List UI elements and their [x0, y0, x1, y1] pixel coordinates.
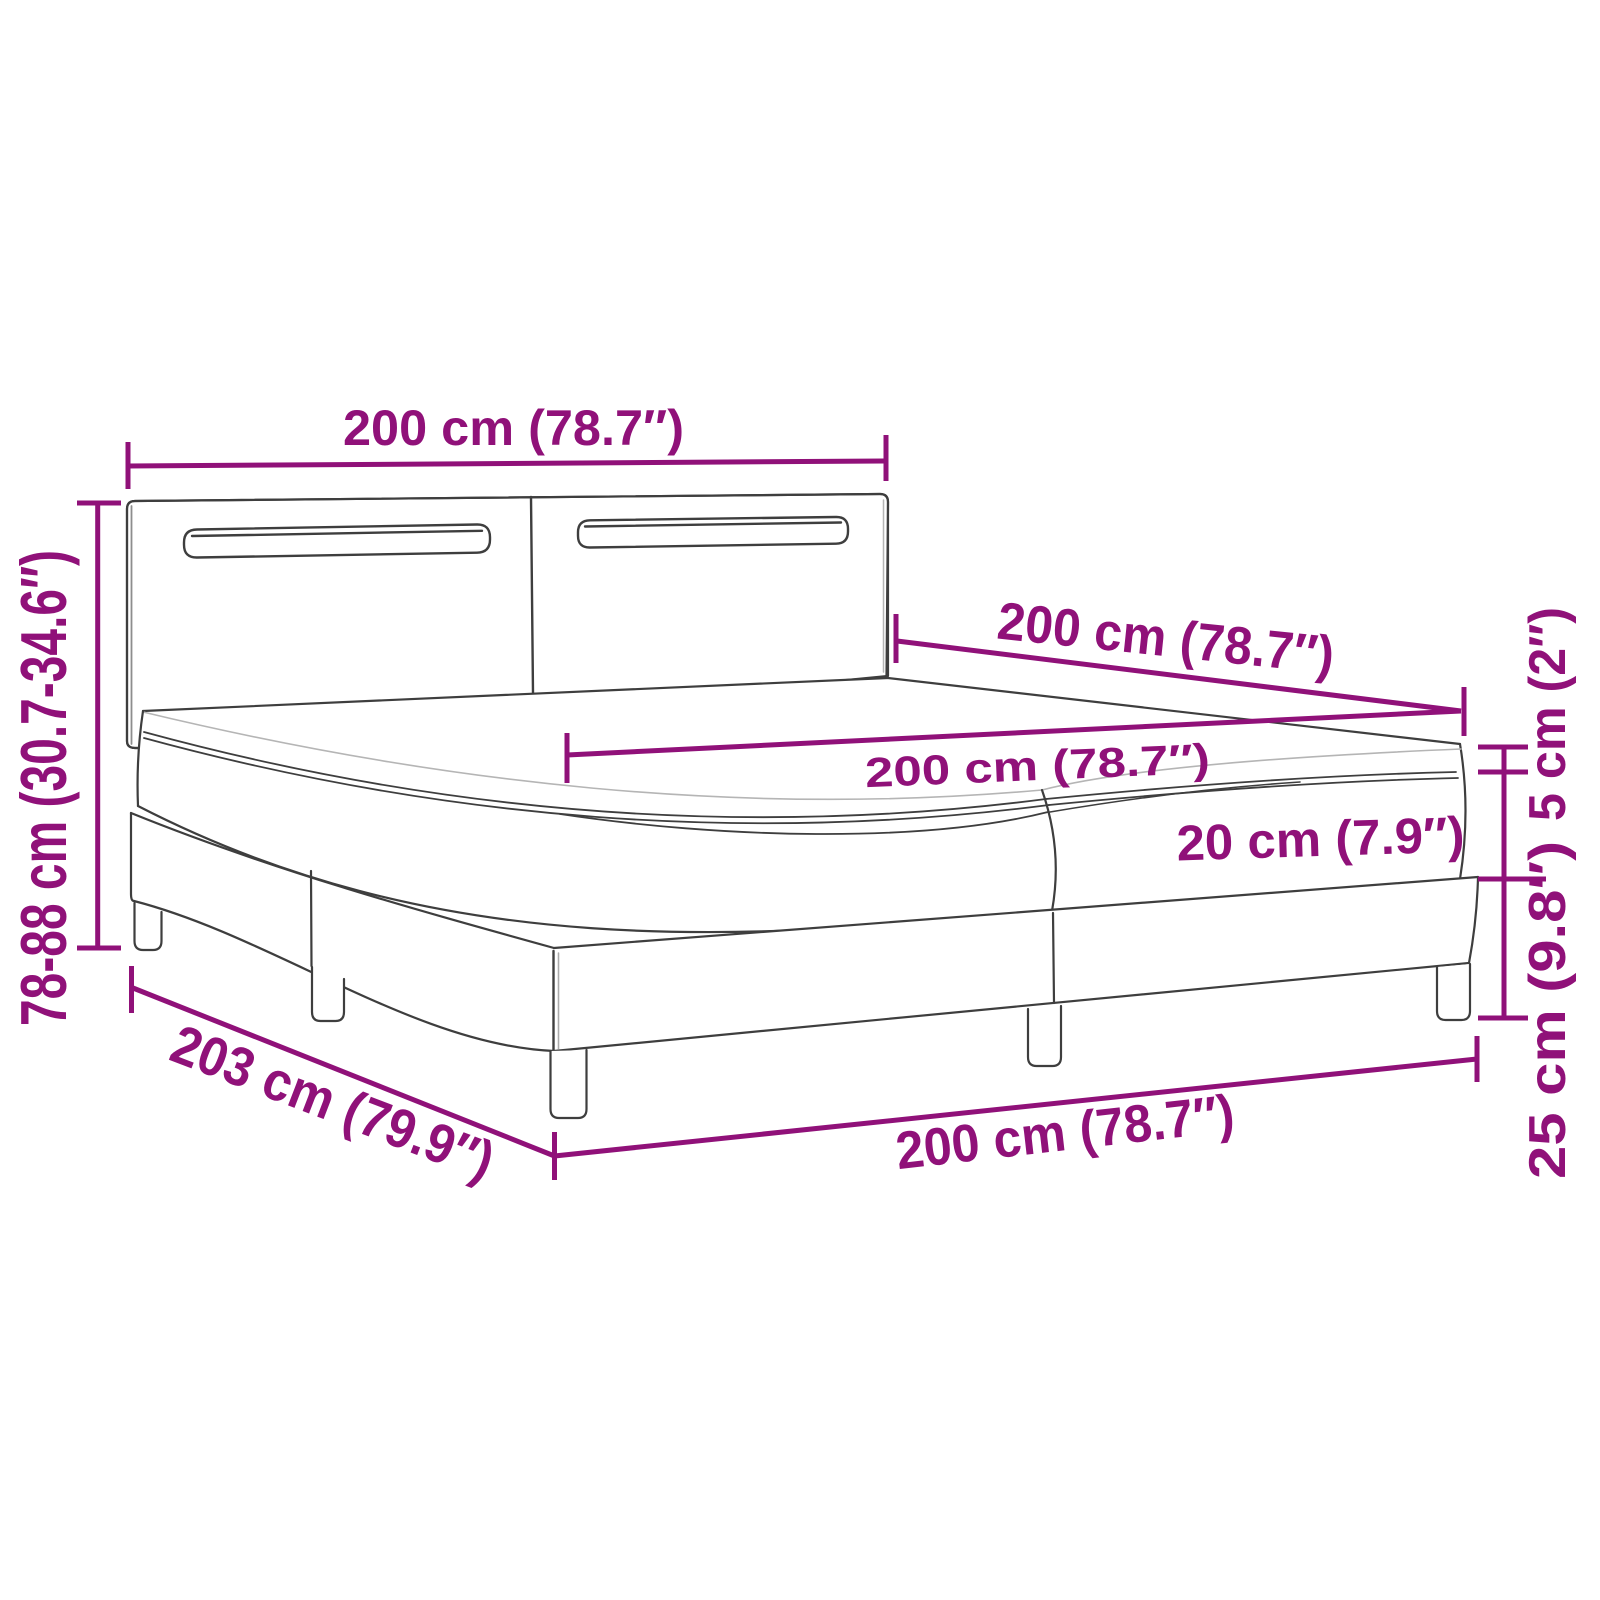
svg-text:200 cm (78.7″): 200 cm (78.7″) — [343, 400, 684, 456]
svg-text:25 cm (9.8″): 25 cm (9.8″) — [1519, 841, 1577, 1179]
svg-text:78-88 cm (30.7-34.6″): 78-88 cm (30.7-34.6″) — [7, 550, 80, 1026]
svg-text:20 cm (7.9″): 20 cm (7.9″) — [1176, 806, 1466, 871]
svg-text:5 cm (2″): 5 cm (2″) — [1519, 607, 1577, 821]
